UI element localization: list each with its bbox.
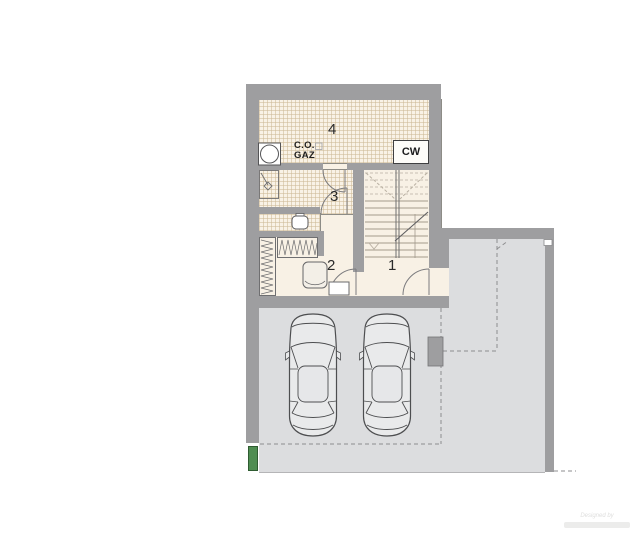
floor-plan-canvas: 1 2 3 4 C.O. GAZ CW Designed by [0,0,638,556]
wall-corner-notch [544,240,552,246]
water-heater-box: CW [393,140,429,164]
boiler-annotation-line2: GAZ [294,151,315,161]
water-heater-label: CW [402,146,420,158]
room-4-label: 4 [328,121,336,138]
wardrobe-hatch-horizontal [278,238,318,258]
garage-pillar [428,337,443,366]
boiler-annotation: C.O. GAZ [294,141,315,161]
plan-linework [0,0,638,556]
car-left [286,314,341,436]
door-entry [403,269,429,295]
cabinet-icon [329,282,349,295]
room-3-label: 3 [330,188,338,205]
washbasin-icon [292,214,308,230]
stool-icon [303,262,327,288]
room-2-label: 2 [327,257,335,274]
staircase [365,170,428,258]
watermark-line2-blur [564,522,630,528]
room-1-label: 1 [388,257,396,274]
gas-boiler-icon [259,143,281,165]
watermark-line1: Designed by [558,513,636,520]
wardrobe-hatch-vertical [260,238,276,296]
gas-meter-icon [316,143,323,150]
shower-tray-icon [260,171,279,199]
watermark: Designed by [558,513,636,528]
car-right [360,314,415,436]
